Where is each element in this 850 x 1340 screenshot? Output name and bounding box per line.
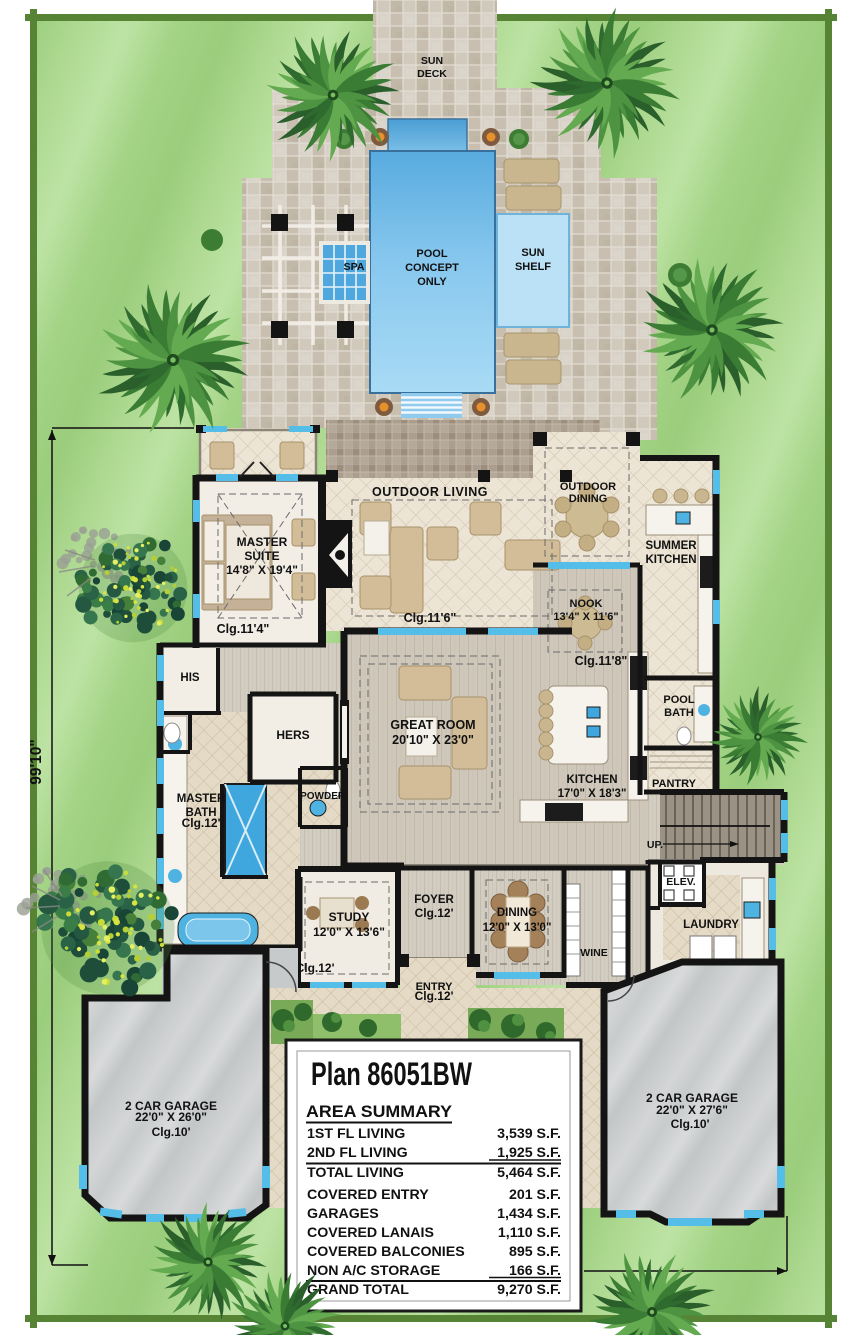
svg-text:3,539 S.F.: 3,539 S.F. — [497, 1126, 561, 1142]
svg-text:SUITE: SUITE — [244, 549, 279, 563]
svg-text:Plan 86051BW: Plan 86051BW — [311, 1056, 473, 1092]
svg-text:Clg.12': Clg.12' — [415, 906, 454, 920]
svg-text:OUTDOOR LIVING: OUTDOOR LIVING — [372, 485, 488, 499]
svg-text:ELEV.: ELEV. — [666, 876, 695, 888]
svg-text:WINE: WINE — [580, 947, 607, 959]
svg-text:9,270 S.F.: 9,270 S.F. — [497, 1282, 561, 1298]
svg-text:POWDER.: POWDER. — [300, 791, 348, 802]
svg-text:20'10" X 23'0": 20'10" X 23'0" — [392, 733, 474, 747]
svg-text:166 S.F.: 166 S.F. — [509, 1263, 561, 1279]
svg-text:AREA SUMMARY: AREA SUMMARY — [306, 1103, 452, 1121]
svg-text:Clg.11'6": Clg.11'6" — [404, 611, 457, 625]
svg-text:MASTER: MASTER — [177, 793, 226, 805]
svg-text:CONCEPT: CONCEPT — [405, 262, 459, 274]
svg-text:SUMMER: SUMMER — [645, 540, 697, 552]
svg-text:DECK: DECK — [417, 68, 447, 80]
svg-text:Clg.12': Clg.12' — [182, 816, 221, 830]
svg-text:GARAGES: GARAGES — [307, 1206, 379, 1222]
svg-text:KITCHEN: KITCHEN — [566, 774, 617, 786]
svg-text:1,434 S.F.: 1,434 S.F. — [497, 1206, 561, 1222]
svg-text:BATH: BATH — [664, 707, 694, 719]
svg-text:PANTRY: PANTRY — [652, 778, 697, 790]
svg-text:Clg.12': Clg.12' — [296, 961, 335, 975]
svg-text:STUDY: STUDY — [329, 910, 370, 924]
svg-text:OUTDOOR: OUTDOOR — [560, 481, 616, 493]
svg-text:POOL: POOL — [663, 694, 694, 706]
svg-text:POOL: POOL — [416, 248, 447, 260]
svg-text:Clg.10': Clg.10' — [671, 1117, 710, 1131]
svg-text:895 S.F.: 895 S.F. — [509, 1244, 561, 1260]
svg-text:17'0" X 18'3": 17'0" X 18'3" — [558, 788, 627, 800]
svg-text:DINING: DINING — [569, 493, 608, 505]
svg-text:5,464 S.F.: 5,464 S.F. — [497, 1165, 561, 1181]
svg-text:UP.: UP. — [647, 839, 663, 851]
svg-text:KITCHEN: KITCHEN — [645, 554, 696, 566]
svg-text:14'8" X 19'4": 14'8" X 19'4" — [226, 563, 298, 577]
svg-text:12'0" X 13'0": 12'0" X 13'0" — [483, 922, 552, 934]
svg-text:MASTER: MASTER — [237, 535, 288, 549]
svg-text:COVERED LANAIS: COVERED LANAIS — [307, 1225, 434, 1241]
svg-text:1,110 S.F.: 1,110 S.F. — [498, 1225, 561, 1241]
svg-text:NON A/C STORAGE: NON A/C STORAGE — [307, 1263, 440, 1279]
svg-text:SUN: SUN — [521, 247, 544, 259]
svg-text:HIS: HIS — [180, 672, 200, 684]
svg-text:12'0" X 13'6": 12'0" X 13'6" — [313, 925, 385, 939]
svg-text:SHELF: SHELF — [515, 261, 551, 273]
svg-text:HERS: HERS — [276, 728, 309, 742]
svg-text:22'0" X 27'6": 22'0" X 27'6" — [656, 1103, 728, 1117]
svg-text:1ST FL LIVING: 1ST FL LIVING — [307, 1126, 405, 1142]
svg-text:FOYER: FOYER — [414, 894, 454, 906]
svg-text:201 S.F.: 201 S.F. — [509, 1187, 561, 1203]
svg-text:Clg.10': Clg.10' — [152, 1125, 191, 1139]
svg-text:SPA: SPA — [344, 261, 365, 273]
svg-text:1,925 S.F.: 1,925 S.F. — [497, 1145, 561, 1161]
svg-text:NOOK: NOOK — [570, 598, 603, 610]
svg-text:2ND FL LIVING: 2ND FL LIVING — [307, 1145, 408, 1161]
svg-text:ONLY: ONLY — [417, 276, 447, 288]
svg-text:99'10": 99'10" — [28, 739, 45, 785]
svg-text:GRAND TOTAL: GRAND TOTAL — [307, 1282, 409, 1298]
svg-text:SUN: SUN — [421, 55, 443, 67]
svg-text:LAUNDRY: LAUNDRY — [683, 919, 739, 931]
svg-text:Clg.11'8": Clg.11'8" — [575, 654, 628, 668]
svg-text:COVERED BALCONIES: COVERED BALCONIES — [307, 1244, 465, 1260]
svg-text:TOTAL LIVING: TOTAL LIVING — [307, 1165, 404, 1181]
svg-text:Clg.11'4": Clg.11'4" — [217, 622, 270, 636]
svg-text:GREAT ROOM: GREAT ROOM — [390, 718, 475, 732]
svg-text:13'4" X 11'6": 13'4" X 11'6" — [553, 611, 618, 623]
svg-text:22'0" X 26'0": 22'0" X 26'0" — [135, 1110, 207, 1124]
svg-text:COVERED ENTRY: COVERED ENTRY — [307, 1187, 429, 1203]
svg-text:Clg.12': Clg.12' — [415, 989, 454, 1003]
svg-text:DINING: DINING — [497, 907, 537, 919]
